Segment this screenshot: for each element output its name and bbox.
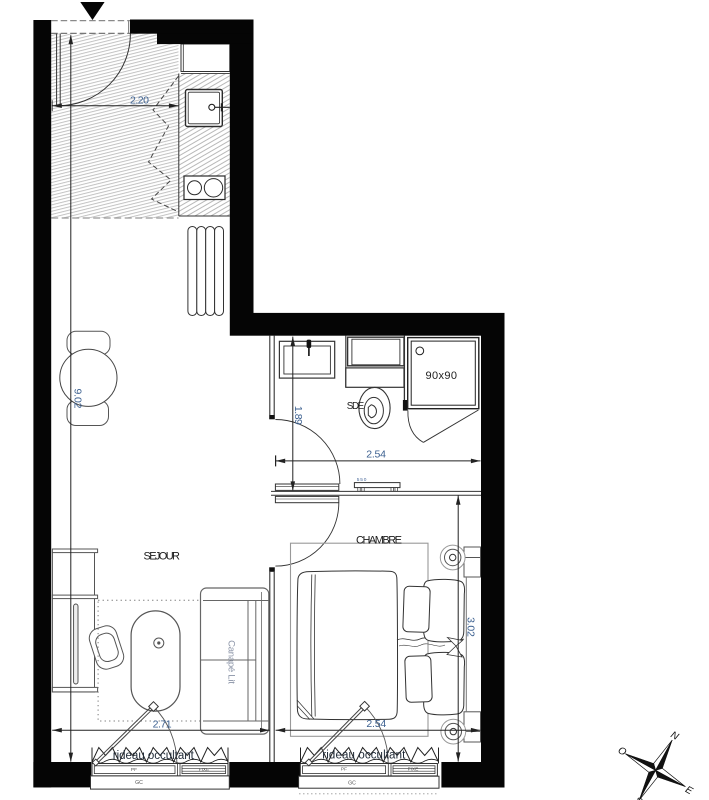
svg-text:GC: GC [348, 780, 356, 786]
svg-text:GC: GC [135, 780, 143, 786]
svg-text:Canapé Lit: Canapé Lit [226, 640, 237, 684]
svg-text:SDE: SDE [347, 401, 365, 412]
svg-text:PF: PF [131, 767, 137, 773]
svg-text:2.54: 2.54 [366, 449, 386, 461]
svg-text:2.20: 2.20 [130, 95, 149, 107]
svg-text:SEJOUR: SEJOUR [144, 550, 181, 562]
svg-text:CHAMBRE: CHAMBRE [356, 535, 402, 547]
svg-text:PF: PF [341, 767, 347, 773]
svg-text:rideau occultant: rideau occultant [113, 750, 195, 762]
svg-text:550: 550 [357, 477, 367, 483]
svg-text:FIXE: FIXE [408, 767, 419, 773]
svg-text:1.89: 1.89 [292, 406, 304, 425]
svg-text:90x90: 90x90 [426, 370, 458, 382]
svg-text:2.54: 2.54 [366, 718, 386, 730]
svg-text:9.02: 9.02 [71, 389, 83, 409]
svg-text:FIXE: FIXE [199, 767, 210, 773]
svg-text:2.71: 2.71 [153, 718, 172, 730]
svg-text:3.02: 3.02 [465, 617, 477, 637]
svg-text:rideau occultant: rideau occultant [322, 749, 406, 761]
